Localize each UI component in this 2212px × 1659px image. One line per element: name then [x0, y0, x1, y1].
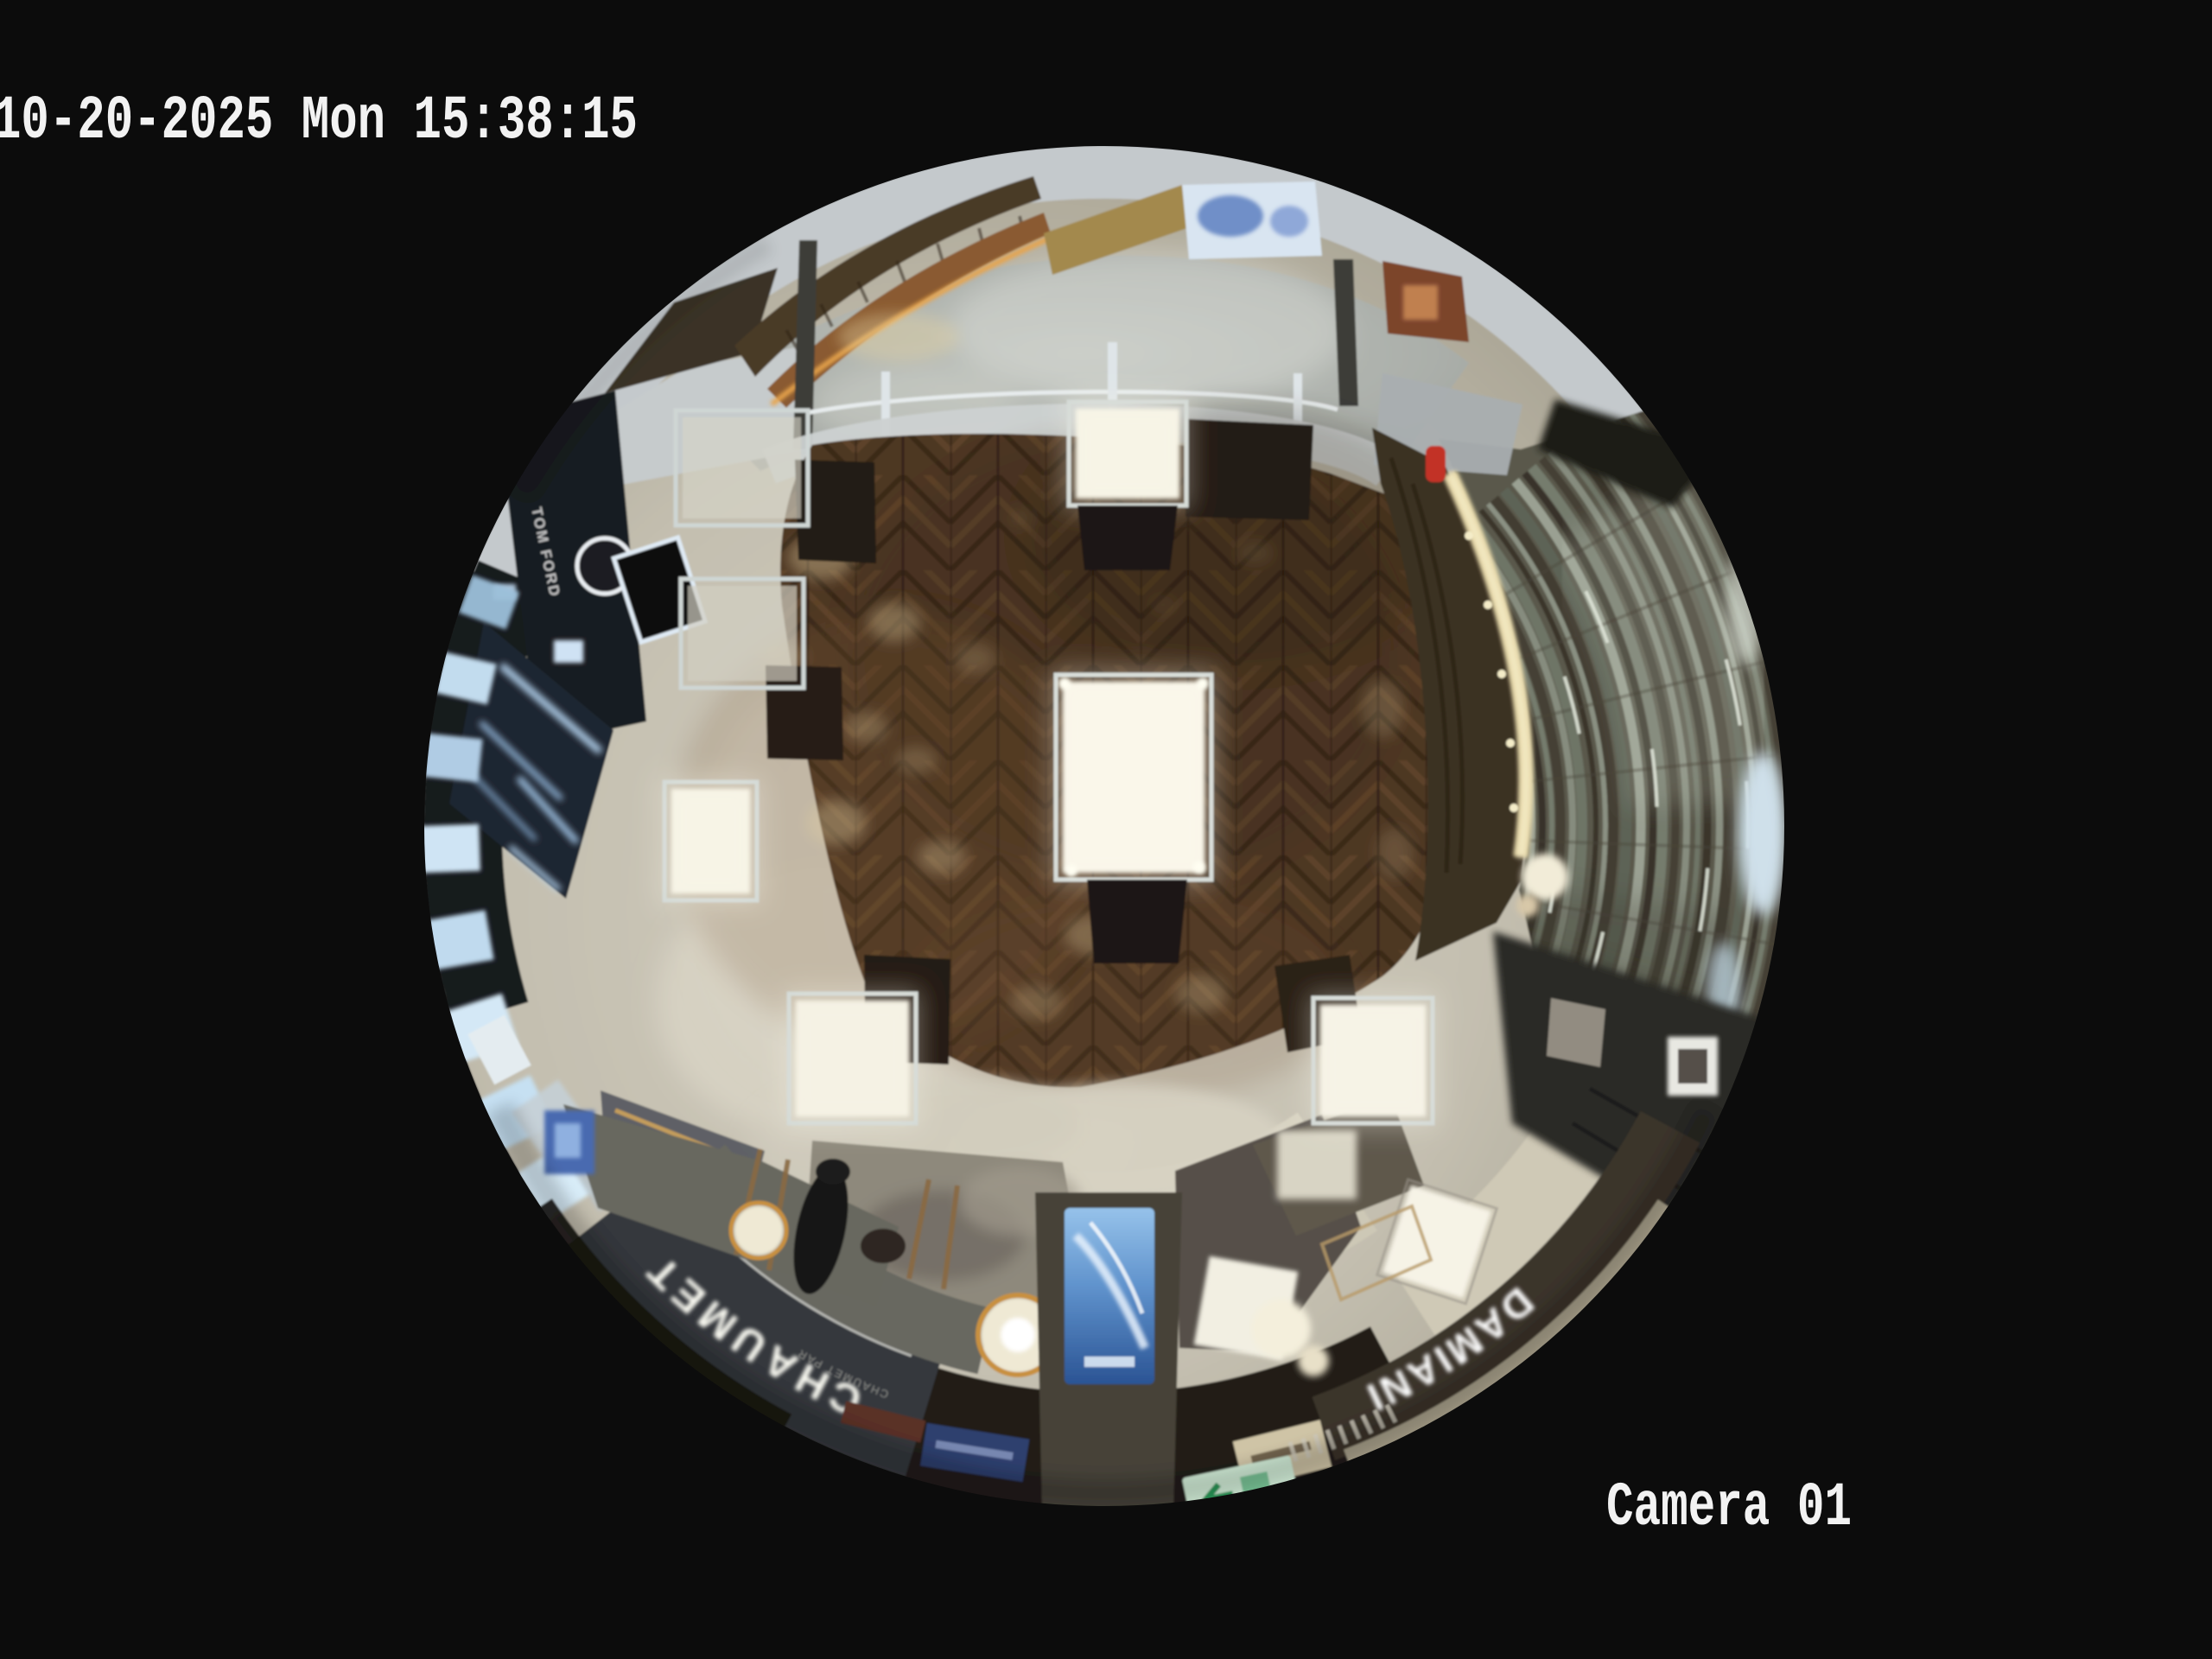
svg-text:Camera 01: Camera 01	[1606, 1474, 1852, 1543]
svg-text:10-20-2025 Mon 15:38:15: 10-20-2025 Mon 15:38:15	[0, 87, 638, 156]
